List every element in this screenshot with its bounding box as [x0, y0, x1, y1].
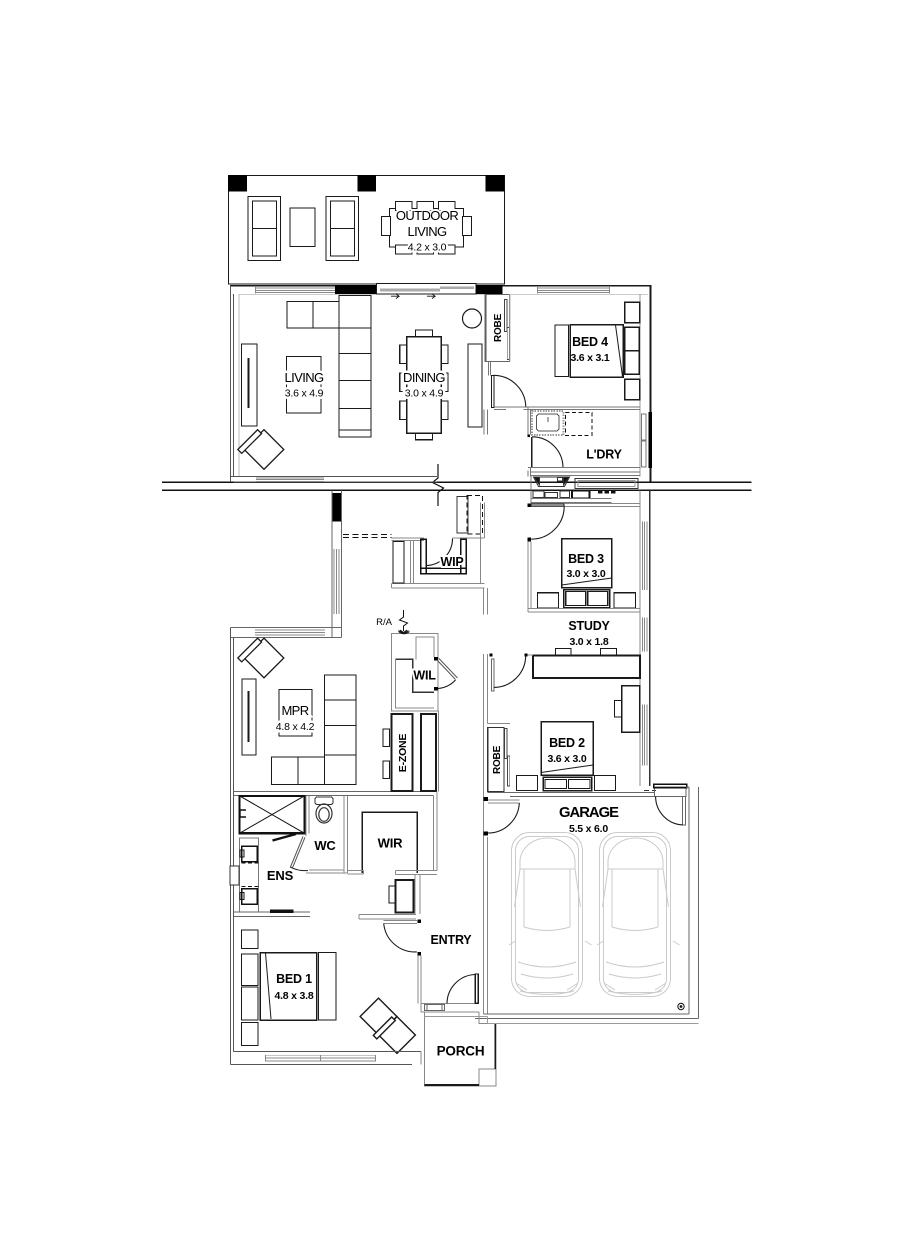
svg-text:L'DRY: L'DRY	[586, 448, 622, 462]
svg-text:LIVING: LIVING	[284, 370, 324, 385]
svg-text:4.2 x 3.0: 4.2 x 3.0	[408, 242, 447, 254]
svg-text:3.6 x 4.9: 3.6 x 4.9	[285, 388, 324, 400]
svg-text:WIL: WIL	[413, 669, 436, 683]
svg-text:BED 3: BED 3	[568, 552, 604, 566]
svg-text:MPR: MPR	[281, 703, 308, 718]
svg-text:GARAGE: GARAGE	[559, 805, 619, 821]
svg-text:3.6 x 3.1: 3.6 x 3.1	[570, 352, 609, 364]
svg-text:BED 4: BED 4	[572, 335, 608, 349]
svg-text:LIVING: LIVING	[407, 224, 447, 239]
svg-text:WC: WC	[314, 838, 336, 853]
svg-text:PORCH: PORCH	[437, 1044, 485, 1059]
svg-text:BED 2: BED 2	[549, 736, 585, 750]
svg-text:ROBE: ROBE	[493, 313, 504, 342]
svg-text:ENS: ENS	[267, 868, 294, 883]
svg-text:3.0 x 1.8: 3.0 x 1.8	[569, 636, 608, 648]
svg-text:OUTDOOR: OUTDOOR	[396, 208, 458, 223]
svg-text:WIR: WIR	[378, 836, 403, 851]
svg-text:STUDY: STUDY	[568, 619, 610, 633]
svg-text:3.6 x 3.0: 3.6 x 3.0	[547, 753, 586, 765]
svg-text:5.5 x 6.0: 5.5 x 6.0	[569, 823, 608, 835]
svg-text:3.0 x 3.0: 3.0 x 3.0	[566, 568, 605, 580]
svg-text:ENTRY: ENTRY	[431, 933, 473, 947]
svg-text:DINING: DINING	[403, 370, 445, 385]
svg-text:4.8 x 3.8: 4.8 x 3.8	[274, 990, 313, 1002]
svg-text:WIP: WIP	[440, 555, 463, 569]
svg-text:BED 1: BED 1	[276, 972, 312, 986]
svg-text:3.0 x 4.9: 3.0 x 4.9	[405, 388, 444, 400]
svg-text:4.8 x 4.2: 4.8 x 4.2	[276, 721, 315, 733]
svg-text:E-ZONE: E-ZONE	[397, 734, 409, 773]
svg-text:R/A: R/A	[376, 617, 393, 628]
svg-text:ROBE: ROBE	[492, 745, 503, 774]
